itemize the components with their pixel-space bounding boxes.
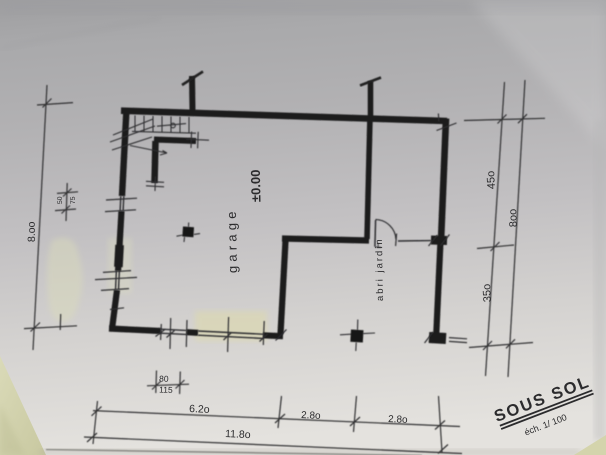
svg-text:50: 50 xyxy=(57,196,64,204)
svg-text:6.2o: 6.2o xyxy=(189,403,210,416)
svg-text:35o: 35o xyxy=(481,284,494,303)
svg-text:±0.00: ±0.00 xyxy=(248,170,264,203)
svg-text:8.oo: 8.oo xyxy=(26,221,38,242)
svg-text:8oo: 8oo xyxy=(507,209,520,228)
svg-text:garage: garage xyxy=(224,207,240,273)
svg-text:2.8o: 2.8o xyxy=(388,414,408,426)
svg-text:2.8o: 2.8o xyxy=(301,410,321,422)
svg-text:11.8o: 11.8o xyxy=(225,428,251,441)
svg-text:75: 75 xyxy=(70,196,77,204)
svg-text:45o: 45o xyxy=(485,171,498,190)
svg-text:80: 80 xyxy=(159,374,169,384)
svg-text:115: 115 xyxy=(159,385,173,395)
svg-text:abri jardin: abri jardin xyxy=(374,237,386,301)
